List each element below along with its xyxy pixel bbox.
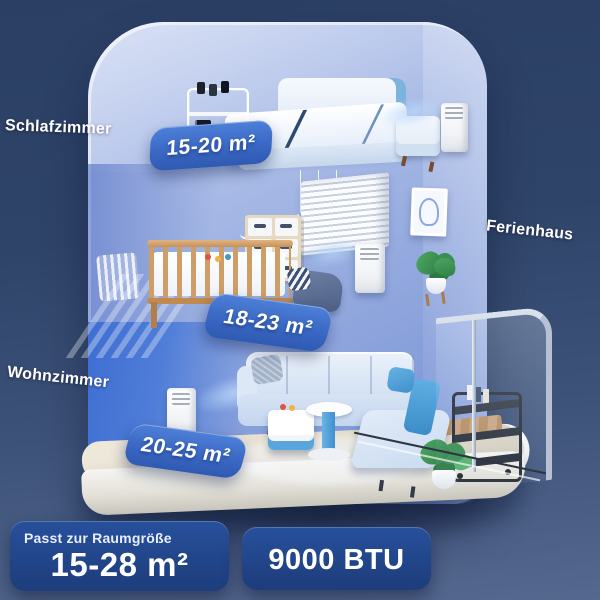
crib-toy-beads (205, 254, 211, 260)
sofa-pillow-cyan (386, 366, 415, 394)
ac-vents (360, 248, 379, 260)
room-size-value: 15-28 m² (10, 546, 229, 581)
crib-top-rail (147, 240, 293, 247)
crib-slats (149, 247, 291, 299)
storage-bin (275, 218, 299, 236)
ac-vents (172, 393, 191, 405)
coffee-table (268, 410, 314, 450)
storage-bin (248, 218, 272, 236)
area-badge-bedroom: 15-20 m² (149, 120, 273, 172)
ac-unit-bedroom (441, 103, 468, 152)
label-ferienhaus: Ferienhaus (485, 217, 574, 244)
ac-vents (445, 107, 462, 119)
cart-bottles (197, 82, 205, 94)
cart-shelf-top (189, 112, 247, 116)
wall-art-drawing (419, 198, 439, 226)
room-size-caption: Passt zur Raumgröße (10, 521, 229, 546)
crib-leg-left (151, 302, 157, 328)
label-schlafzimmer: Schlafzimmer (5, 117, 112, 139)
coffee-table-toy (280, 404, 286, 410)
product-infographic: Schlafzimmer Ferienhaus Wohnzimmer 15-20… (0, 0, 600, 600)
side-table-base (308, 448, 350, 461)
ac-unit-nursery (355, 243, 385, 293)
room-size-box: Passt zur Raumgröße 15-28 m² (10, 521, 229, 591)
radiator (96, 252, 140, 301)
balcony-glass-frame (436, 306, 552, 492)
sofa-pillow-gray (250, 354, 284, 386)
btu-value: 9000 BTU (242, 527, 431, 592)
btu-box: 9000 BTU (242, 527, 431, 590)
zigzag-pillow (287, 267, 312, 292)
balcony-post (472, 320, 476, 472)
